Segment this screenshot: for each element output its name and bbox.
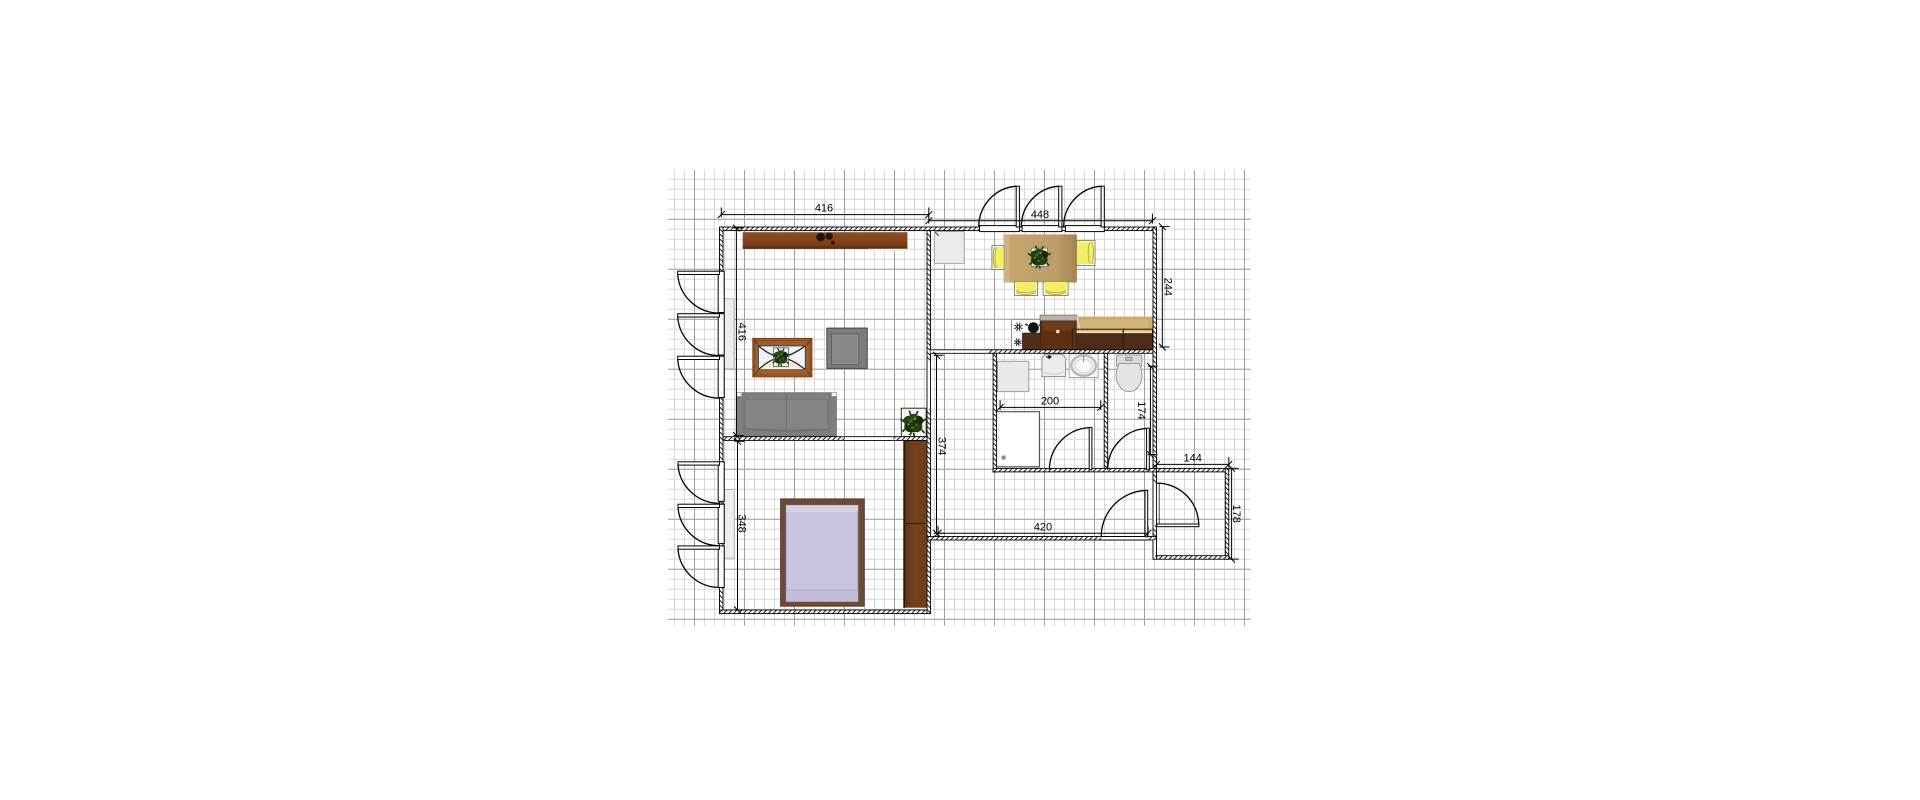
svg-text:374: 374 bbox=[936, 437, 948, 455]
svg-text:174: 174 bbox=[1135, 401, 1147, 419]
svg-text:416: 416 bbox=[815, 203, 833, 215]
svg-text:178: 178 bbox=[1230, 505, 1242, 523]
svg-text:144: 144 bbox=[1184, 453, 1202, 465]
svg-text:416: 416 bbox=[736, 323, 748, 341]
svg-text:348: 348 bbox=[736, 514, 748, 532]
svg-text:420: 420 bbox=[1034, 522, 1052, 534]
svg-text:200: 200 bbox=[1041, 396, 1059, 408]
svg-text:448: 448 bbox=[1031, 209, 1049, 221]
svg-text:244: 244 bbox=[1162, 278, 1174, 296]
